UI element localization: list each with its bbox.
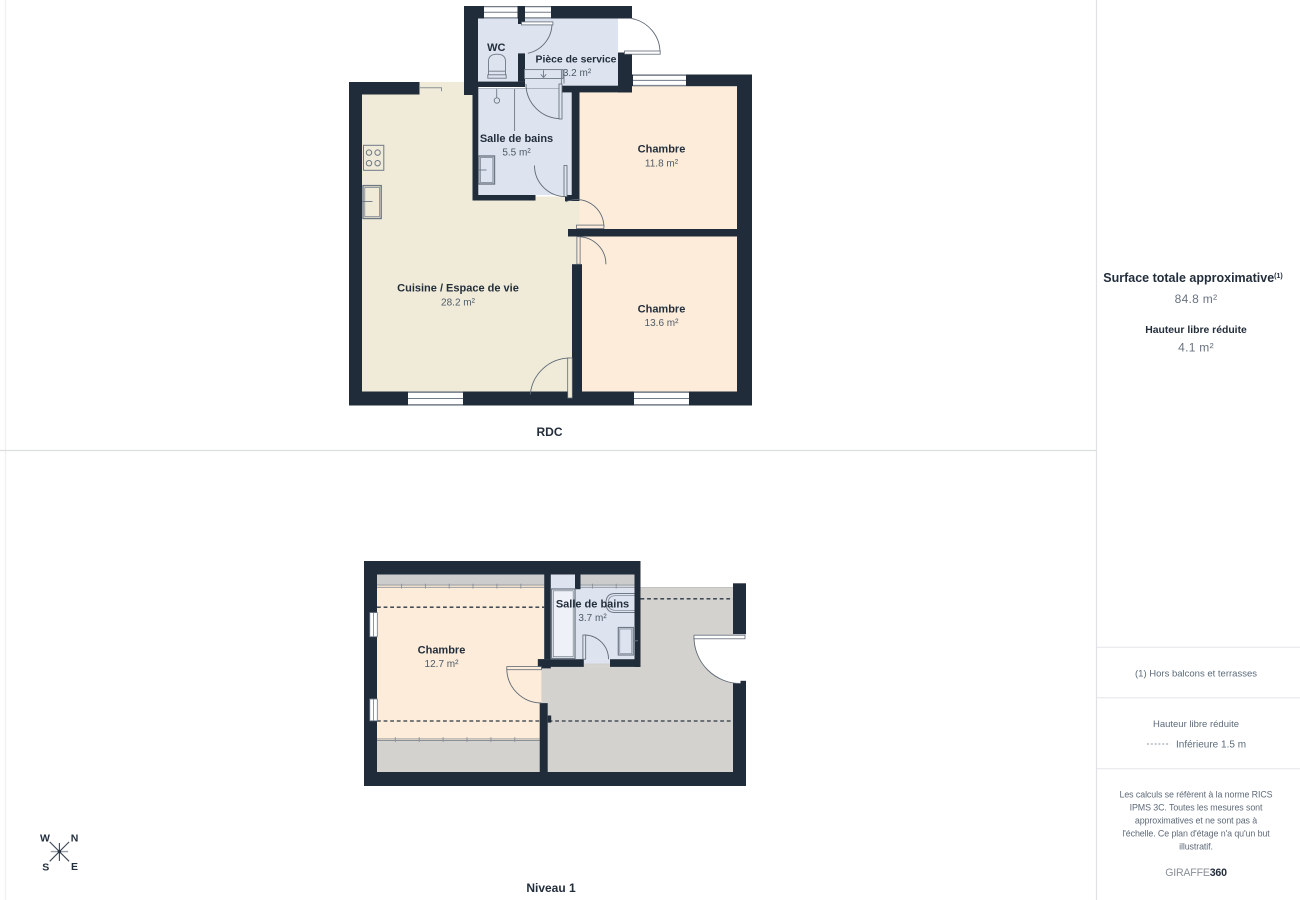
svg-text:Salle de bains: Salle de bains	[556, 599, 629, 611]
svg-text:Hauteur libre réduite: Hauteur libre réduite	[1145, 325, 1247, 336]
svg-text:84.8 m²: 84.8 m²	[1175, 292, 1218, 306]
svg-text:Les calculs se réfèrent à la n: Les calculs se réfèrent à la norme RICS	[1120, 790, 1273, 800]
svg-text:Hauteur libre réduite: Hauteur libre réduite	[1153, 719, 1239, 730]
svg-text:Inférieure 1.5 m: Inférieure 1.5 m	[1176, 739, 1246, 750]
svg-text:5.5 m²: 5.5 m²	[502, 148, 531, 159]
svg-text:IPMS 3C. Toutes les mesures so: IPMS 3C. Toutes les mesures sont	[1130, 803, 1263, 813]
svg-text:12.7 m²: 12.7 m²	[425, 659, 460, 670]
svg-text:3.7 m²: 3.7 m²	[578, 613, 607, 624]
svg-text:11.8 m²: 11.8 m²	[645, 159, 679, 170]
svg-text:Chambre: Chambre	[418, 645, 466, 657]
svg-text:Chambre: Chambre	[638, 144, 686, 156]
svg-text:13.6 m²: 13.6 m²	[645, 318, 680, 329]
svg-text:N: N	[71, 832, 79, 844]
svg-text:W: W	[40, 832, 50, 844]
svg-text:S: S	[42, 862, 49, 874]
svg-text:RDC: RDC	[537, 425, 563, 439]
svg-text:3.2 m²: 3.2 m²	[563, 68, 592, 79]
svg-text:Pièce de service: Pièce de service	[536, 55, 617, 66]
svg-text:Cuisine / Espace de vie: Cuisine / Espace de vie	[397, 283, 519, 295]
svg-text:E: E	[71, 861, 78, 873]
svg-text:GIRAFFE360: GIRAFFE360	[1165, 867, 1227, 879]
svg-text:l'échelle. Ce plan d'étage n'a: l'échelle. Ce plan d'étage n'a qu'un but	[1122, 829, 1270, 839]
svg-text:approximatives et ne sont pas: approximatives et ne sont pas à	[1135, 816, 1257, 826]
svg-text:28.2 m²: 28.2 m²	[441, 298, 476, 309]
svg-text:Surface totale approximative(1: Surface totale approximative(1)	[1103, 271, 1282, 285]
svg-text:WC: WC	[487, 42, 505, 54]
svg-text:illustratif.: illustratif.	[1179, 842, 1213, 852]
svg-text:Salle de bains: Salle de bains	[480, 133, 553, 145]
svg-text:Niveau 1: Niveau 1	[526, 881, 576, 895]
svg-text:4.1 m²: 4.1 m²	[1178, 341, 1214, 355]
svg-text:Chambre: Chambre	[638, 304, 686, 316]
svg-text:(1) Hors balcons et terrasses: (1) Hors balcons et terrasses	[1135, 669, 1257, 680]
